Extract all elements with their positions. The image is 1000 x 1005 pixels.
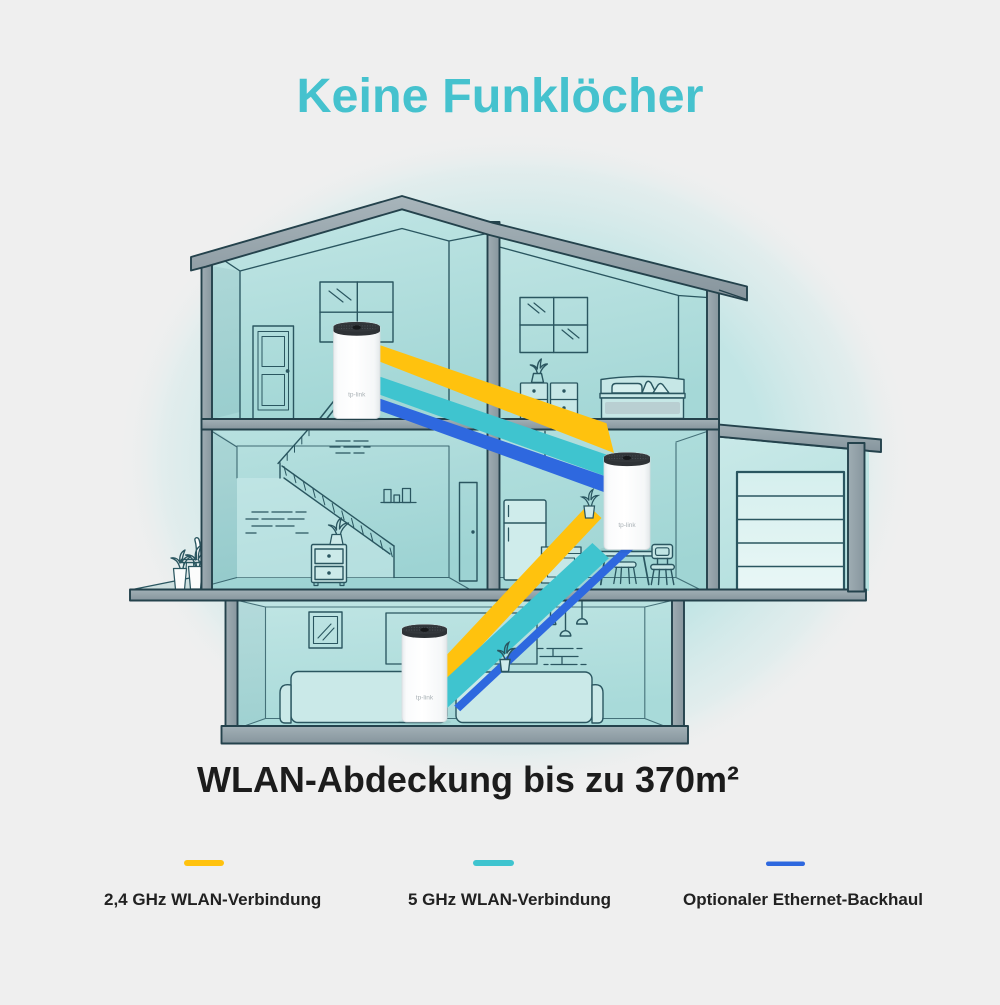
svg-text:tp-link: tp-link <box>618 522 636 529</box>
svg-text:tp-link: tp-link <box>416 695 434 702</box>
svg-text:tp-link: tp-link <box>348 391 366 398</box>
